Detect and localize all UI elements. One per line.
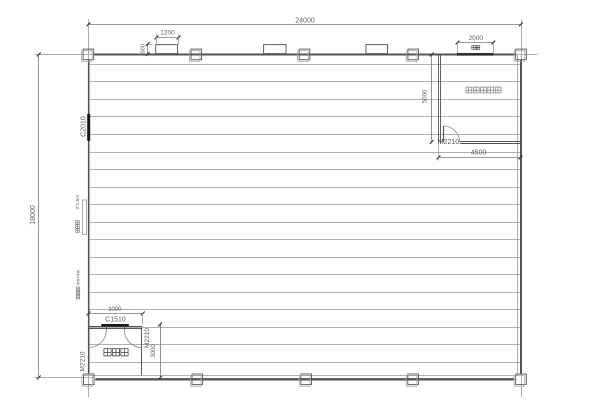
svg-text:500: 500 <box>140 44 146 53</box>
svg-text:1200: 1200 <box>160 29 175 36</box>
svg-text:C1510: C1510 <box>105 317 126 324</box>
svg-text:2000: 2000 <box>469 35 484 42</box>
svg-text:24000: 24000 <box>295 17 315 24</box>
svg-text:3000: 3000 <box>108 307 122 313</box>
svg-text:4500: 4500 <box>471 150 487 157</box>
svg-text:2*2.5m: 2*2.5m <box>75 195 80 210</box>
svg-text:5000: 5000 <box>423 89 429 103</box>
svg-text:18000: 18000 <box>30 205 37 225</box>
svg-text:4m×4m: 4m×4m <box>76 269 81 285</box>
svg-text:M2210: M2210 <box>144 328 151 348</box>
svg-text:M2210: M2210 <box>80 351 87 371</box>
svg-text:3000: 3000 <box>151 344 157 358</box>
svg-text:C2010: C2010 <box>80 116 87 137</box>
svg-text:M2210: M2210 <box>438 139 460 146</box>
